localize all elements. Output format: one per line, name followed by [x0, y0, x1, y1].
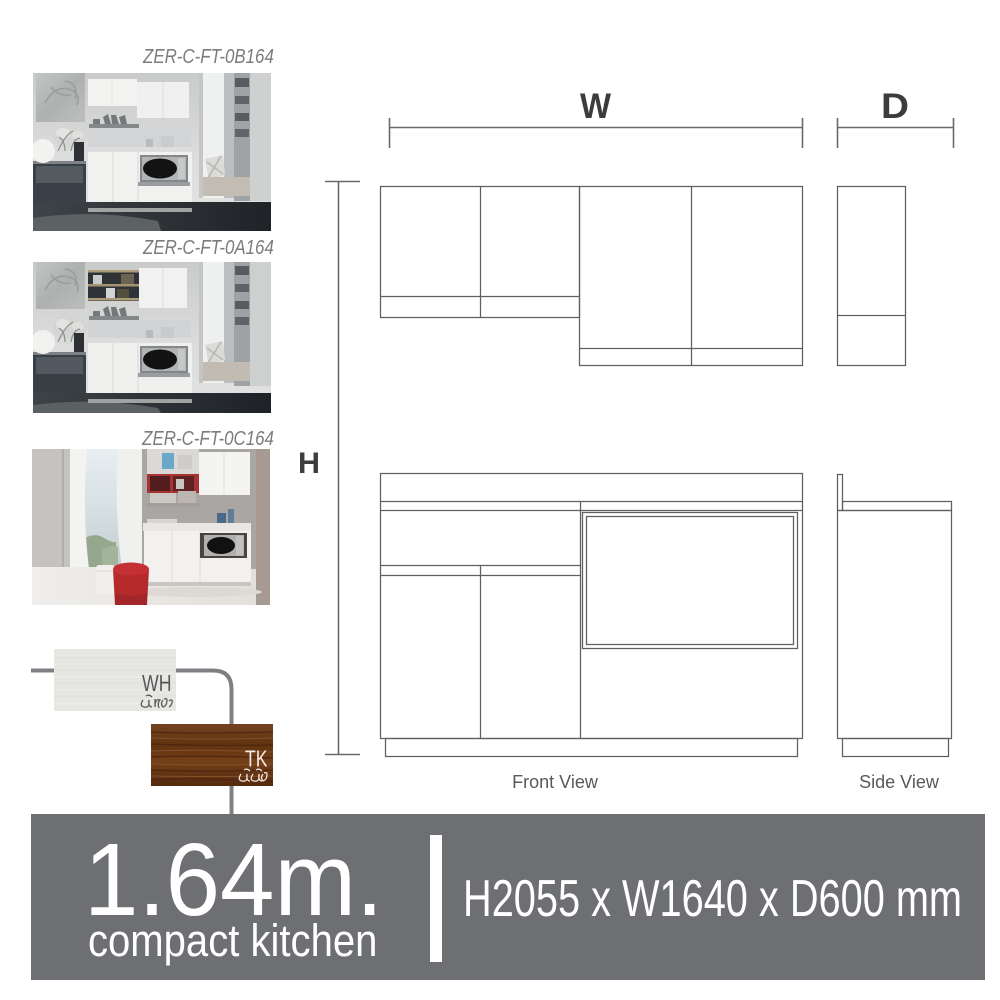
svg-text:TK: TK	[245, 746, 268, 772]
svg-text:WH: WH	[142, 670, 172, 696]
